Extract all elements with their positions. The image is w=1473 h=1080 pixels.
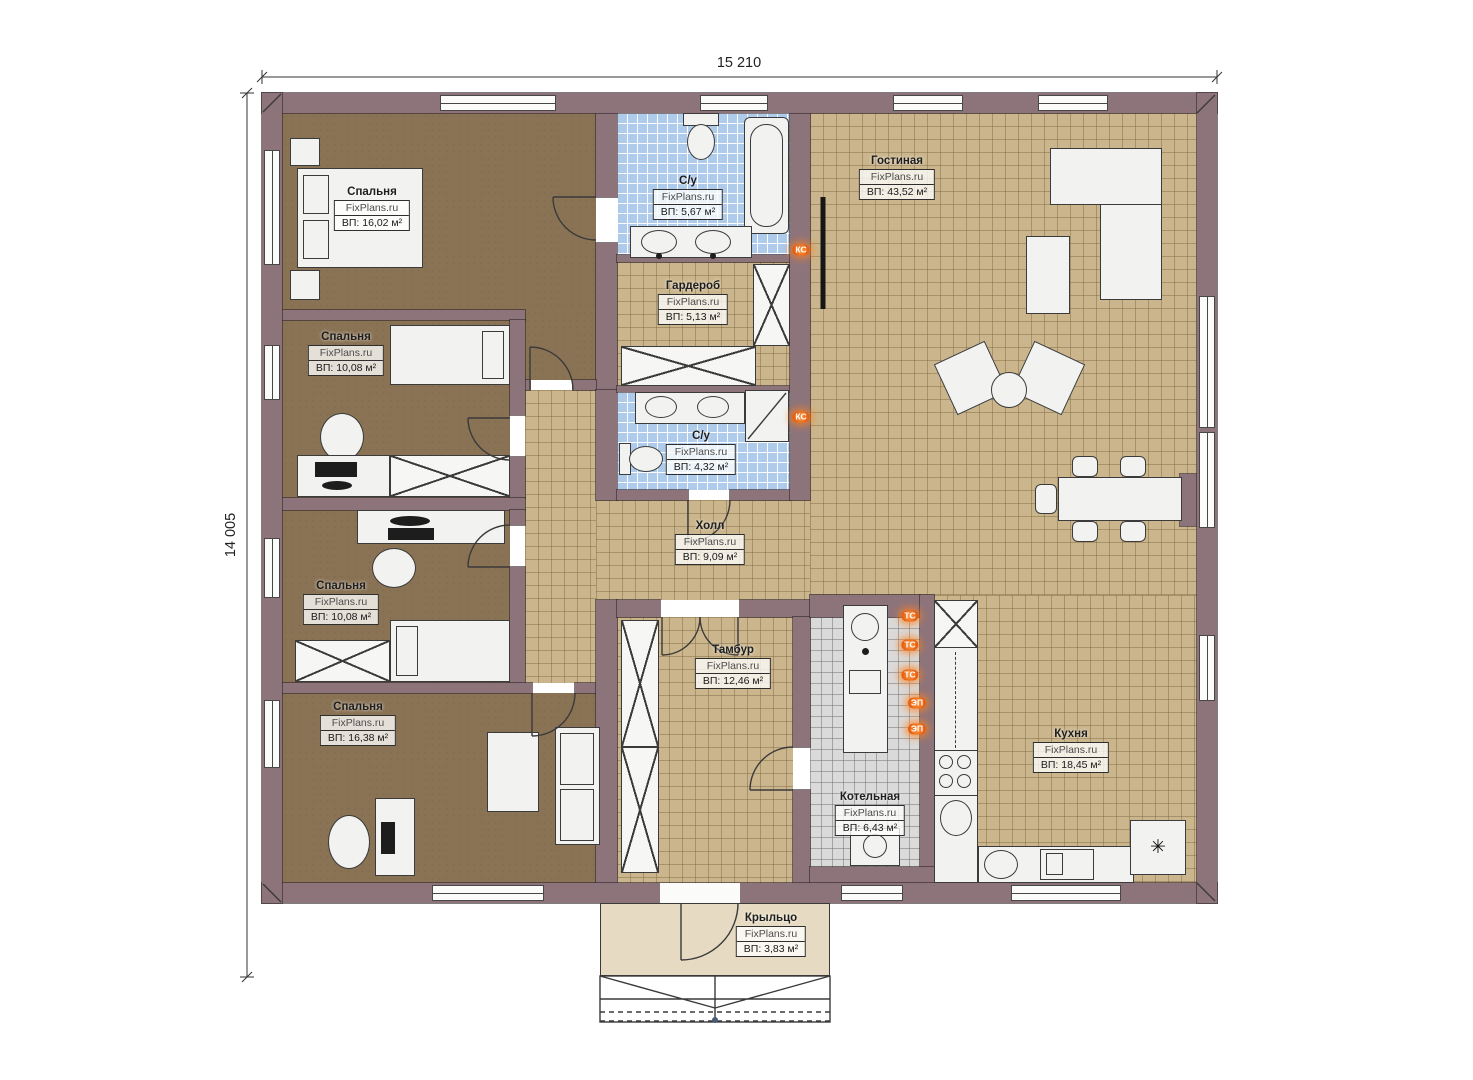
fridge: ✳ xyxy=(1130,820,1186,875)
room-area: ВП: 5,13 м² xyxy=(659,310,727,324)
wall-bedroom2-right-lower xyxy=(510,457,525,498)
brand-watermark: FixPlans.ru xyxy=(860,170,934,185)
window-bedroom1-left xyxy=(264,150,280,265)
room-area: ВП: 4,32 м² xyxy=(667,460,735,474)
kitchen-sink xyxy=(984,850,1018,879)
porch-steps-lines xyxy=(600,976,830,1022)
sofa-cushion xyxy=(560,789,594,841)
dining-chair xyxy=(1072,521,1098,542)
laptop-icon xyxy=(390,516,430,526)
coffee-table xyxy=(487,732,539,812)
vent-shaft xyxy=(934,600,978,648)
bathtub-basin xyxy=(750,124,783,227)
wall-nook-left xyxy=(525,380,530,390)
wall-bedroom3-right-upper xyxy=(510,510,525,525)
window-boiler-bottom xyxy=(841,885,903,901)
room-label-boiler: Котельная FixPlans.ru ВП: 6,43 м² xyxy=(835,791,905,836)
brand-watermark: FixPlans.ru xyxy=(696,659,770,674)
bed-pillow xyxy=(482,331,504,379)
wall-hall-tambour-right xyxy=(740,600,810,617)
room-area: ВП: 43,52 м² xyxy=(860,185,934,199)
wall-boiler-bottom xyxy=(810,867,934,883)
utility-marker-heating: ТС xyxy=(901,670,918,681)
brand-watermark: FixPlans.ru xyxy=(836,806,904,821)
bed-pillow xyxy=(303,220,329,259)
window-kitchen-right xyxy=(1199,635,1215,701)
utility-marker-electric: ЭП xyxy=(908,724,926,735)
room-name: Гардероб xyxy=(658,280,728,292)
room-label-bedroom2: Спальня FixPlans.ru ВП: 10,08 м² xyxy=(308,331,384,376)
floor-plan: ✳ xyxy=(0,0,1473,1080)
window-bath1-top xyxy=(700,95,768,111)
wall-bath2-bottom-right xyxy=(730,490,790,500)
room-label-bath1: С/у FixPlans.ru ВП: 5,67 м² xyxy=(653,175,723,220)
wall-bedroom1-right-lower xyxy=(596,243,617,390)
room-area: ВП: 6,43 м² xyxy=(836,821,904,835)
utility-marker-heating: ТС xyxy=(901,640,918,651)
dimension-line-top xyxy=(257,70,1222,84)
room-name: Гостиная xyxy=(859,155,935,167)
porch-steps-node xyxy=(712,1017,718,1023)
washer-drum-icon xyxy=(863,834,887,858)
room-name: Спальня xyxy=(334,186,410,198)
dishwasher-door xyxy=(1046,853,1063,875)
computer-monitor-icon xyxy=(381,822,395,854)
wall-nook-right xyxy=(573,380,596,390)
room-name: С/у xyxy=(666,430,736,442)
room-name: Тамбур xyxy=(695,644,771,656)
corner-sofa-horizontal xyxy=(1050,148,1162,205)
wardrobe-cabinet xyxy=(295,640,390,682)
nightstand xyxy=(290,270,320,300)
shower-tray xyxy=(745,390,789,442)
utility-marker-electric: ЭП xyxy=(908,698,926,709)
brand-watermark: FixPlans.ru xyxy=(321,716,395,731)
room-label-bedroom3: Спальня FixPlans.ru ВП: 10,08 м² xyxy=(303,580,379,625)
room-area: ВП: 16,38 м² xyxy=(321,731,395,745)
dimension-height: 14 005 xyxy=(223,513,239,557)
computer-monitor-icon xyxy=(315,462,357,477)
wall-tambour-right-lower xyxy=(793,790,810,883)
sink-basin xyxy=(645,396,677,418)
tall-cabinet xyxy=(955,652,956,748)
wall-bath2-bottom-left xyxy=(617,490,688,500)
wall-dining-niche xyxy=(1180,474,1197,526)
room-area: ВП: 9,09 м² xyxy=(676,550,744,564)
floor-corridor xyxy=(525,390,596,683)
dimension-width: 15 210 xyxy=(717,55,761,71)
room-area: ВП: 5,67 м² xyxy=(654,205,722,219)
burner-icon xyxy=(957,774,971,788)
sink-basin xyxy=(641,230,677,254)
utility-marker-sewer: КС xyxy=(792,412,809,423)
room-label-bath2: С/у FixPlans.ru ВП: 4,32 м² xyxy=(666,430,736,475)
utility-marker-heating: ТС xyxy=(901,611,918,622)
coffee-table xyxy=(1026,236,1070,314)
dining-chair xyxy=(1120,456,1146,477)
wall-bedroom1-bottom xyxy=(282,310,525,320)
room-name: Холл xyxy=(675,520,745,532)
room-label-bedroom4: Спальня FixPlans.ru ВП: 16,38 м² xyxy=(320,701,396,746)
window-bedroom3-left xyxy=(264,538,280,598)
room-name: Кухня xyxy=(1033,728,1109,740)
room-label-kitchen: Кухня FixPlans.ru ВП: 18,45 м² xyxy=(1033,728,1109,773)
wall-bedroom3-bottom-left xyxy=(282,683,532,693)
window-living-right xyxy=(1199,296,1215,428)
boiler-valve-icon xyxy=(862,648,869,655)
room-name: Спальня xyxy=(303,580,379,592)
window-living-top-1 xyxy=(893,95,963,111)
room-label-living: Гостиная FixPlans.ru ВП: 43,52 м² xyxy=(859,155,935,200)
room-name: Спальня xyxy=(320,701,396,713)
toilet-bowl xyxy=(687,124,715,160)
dimension-line-left xyxy=(240,88,254,982)
burner-icon xyxy=(939,755,953,769)
boiler-equipment xyxy=(849,670,881,694)
bed-pillow xyxy=(303,175,329,214)
entrance-door-opening xyxy=(660,883,740,903)
office-chair xyxy=(328,815,370,869)
nightstand xyxy=(290,138,320,166)
room-area: ВП: 16,02 м² xyxy=(335,216,409,230)
brand-watermark: FixPlans.ru xyxy=(1034,743,1108,758)
room-name: Крыльцо xyxy=(736,912,806,924)
window-living-top-2 xyxy=(1038,95,1108,111)
room-area: ВП: 18,45 м² xyxy=(1034,758,1108,772)
room-name: Спальня xyxy=(308,331,384,343)
wall-bedroom3-bottom-right xyxy=(575,683,596,693)
porch-steps xyxy=(600,976,830,1022)
window-bedroom4-bottom xyxy=(432,885,544,901)
wall-bedroom3-right-lower xyxy=(510,567,525,683)
window-bedroom4-left xyxy=(264,700,280,768)
wall-middle-column-right xyxy=(790,113,810,500)
utility-marker-sewer: КС xyxy=(792,245,809,256)
sink-basin xyxy=(697,396,729,418)
porch-steps-dashed xyxy=(600,1012,830,1021)
wall-bedroom2-right-upper xyxy=(510,320,525,415)
room-label-wardrobe: Гардероб FixPlans.ru ВП: 5,13 м² xyxy=(658,280,728,325)
dining-chair xyxy=(1120,521,1146,542)
brand-watermark: FixPlans.ru xyxy=(654,190,722,205)
room-area: ВП: 10,08 м² xyxy=(304,610,378,624)
room-area: ВП: 12,46 м² xyxy=(696,674,770,688)
burner-icon xyxy=(939,774,953,788)
room-label-tambour: Тамбур FixPlans.ru ВП: 12,46 м² xyxy=(695,644,771,689)
brand-watermark: FixPlans.ru xyxy=(667,445,735,460)
wall-bedroom2-bottom xyxy=(282,498,525,510)
sink-basin xyxy=(695,230,731,254)
dining-chair xyxy=(1035,484,1057,514)
window-bedroom2-left xyxy=(264,345,280,400)
room-label-porch: Крыльцо FixPlans.ru ВП: 3,83 м² xyxy=(736,912,806,957)
kitchen-sink xyxy=(940,800,972,836)
room-area: ВП: 10,08 м² xyxy=(309,361,383,375)
toilet-bowl xyxy=(629,446,663,472)
window-bedroom1-top xyxy=(440,95,556,111)
snowflake-icon: ✳ xyxy=(1131,821,1185,874)
room-label-bedroom1: Спальня FixPlans.ru ВП: 16,02 м² xyxy=(334,186,410,231)
window-kitchen-bottom xyxy=(1011,885,1121,901)
burner-icon xyxy=(957,755,971,769)
brand-watermark: FixPlans.ru xyxy=(309,346,383,361)
printer-icon xyxy=(388,528,434,540)
sofa-cushion xyxy=(560,733,594,785)
dining-chair xyxy=(1072,456,1098,477)
brand-watermark: FixPlans.ru xyxy=(659,295,727,310)
room-name: Котельная xyxy=(835,791,905,803)
plant-pot xyxy=(320,413,364,461)
wardrobe-cabinet xyxy=(621,346,756,386)
closet xyxy=(621,620,659,747)
room-label-hall: Холл FixPlans.ru ВП: 9,09 м² xyxy=(675,520,745,565)
wall-bedroom1-right-upper xyxy=(596,113,617,197)
wall-corridor-right xyxy=(596,390,617,500)
wall-hall-tambour-left xyxy=(617,600,660,617)
dining-table xyxy=(1058,477,1182,521)
wall-tambour-right-upper xyxy=(793,617,810,747)
brand-watermark: FixPlans.ru xyxy=(737,927,805,942)
wardrobe-cabinet xyxy=(753,264,790,346)
keyboard-icon xyxy=(322,481,352,490)
brand-watermark: FixPlans.ru xyxy=(676,535,744,550)
side-table xyxy=(991,372,1027,408)
bed-pillow xyxy=(396,626,418,676)
window-dining-right xyxy=(1199,432,1215,528)
room-area: ВП: 3,83 м² xyxy=(737,942,805,956)
faucet-icon xyxy=(656,253,662,259)
brand-watermark: FixPlans.ru xyxy=(304,595,378,610)
brand-watermark: FixPlans.ru xyxy=(335,201,409,216)
boiler-tank xyxy=(851,613,879,641)
wardrobe-cabinet xyxy=(390,455,510,497)
faucet-icon xyxy=(710,253,716,259)
floor-bedroom-1-nook xyxy=(525,310,596,380)
closet xyxy=(621,747,659,873)
room-name: С/у xyxy=(653,175,723,187)
